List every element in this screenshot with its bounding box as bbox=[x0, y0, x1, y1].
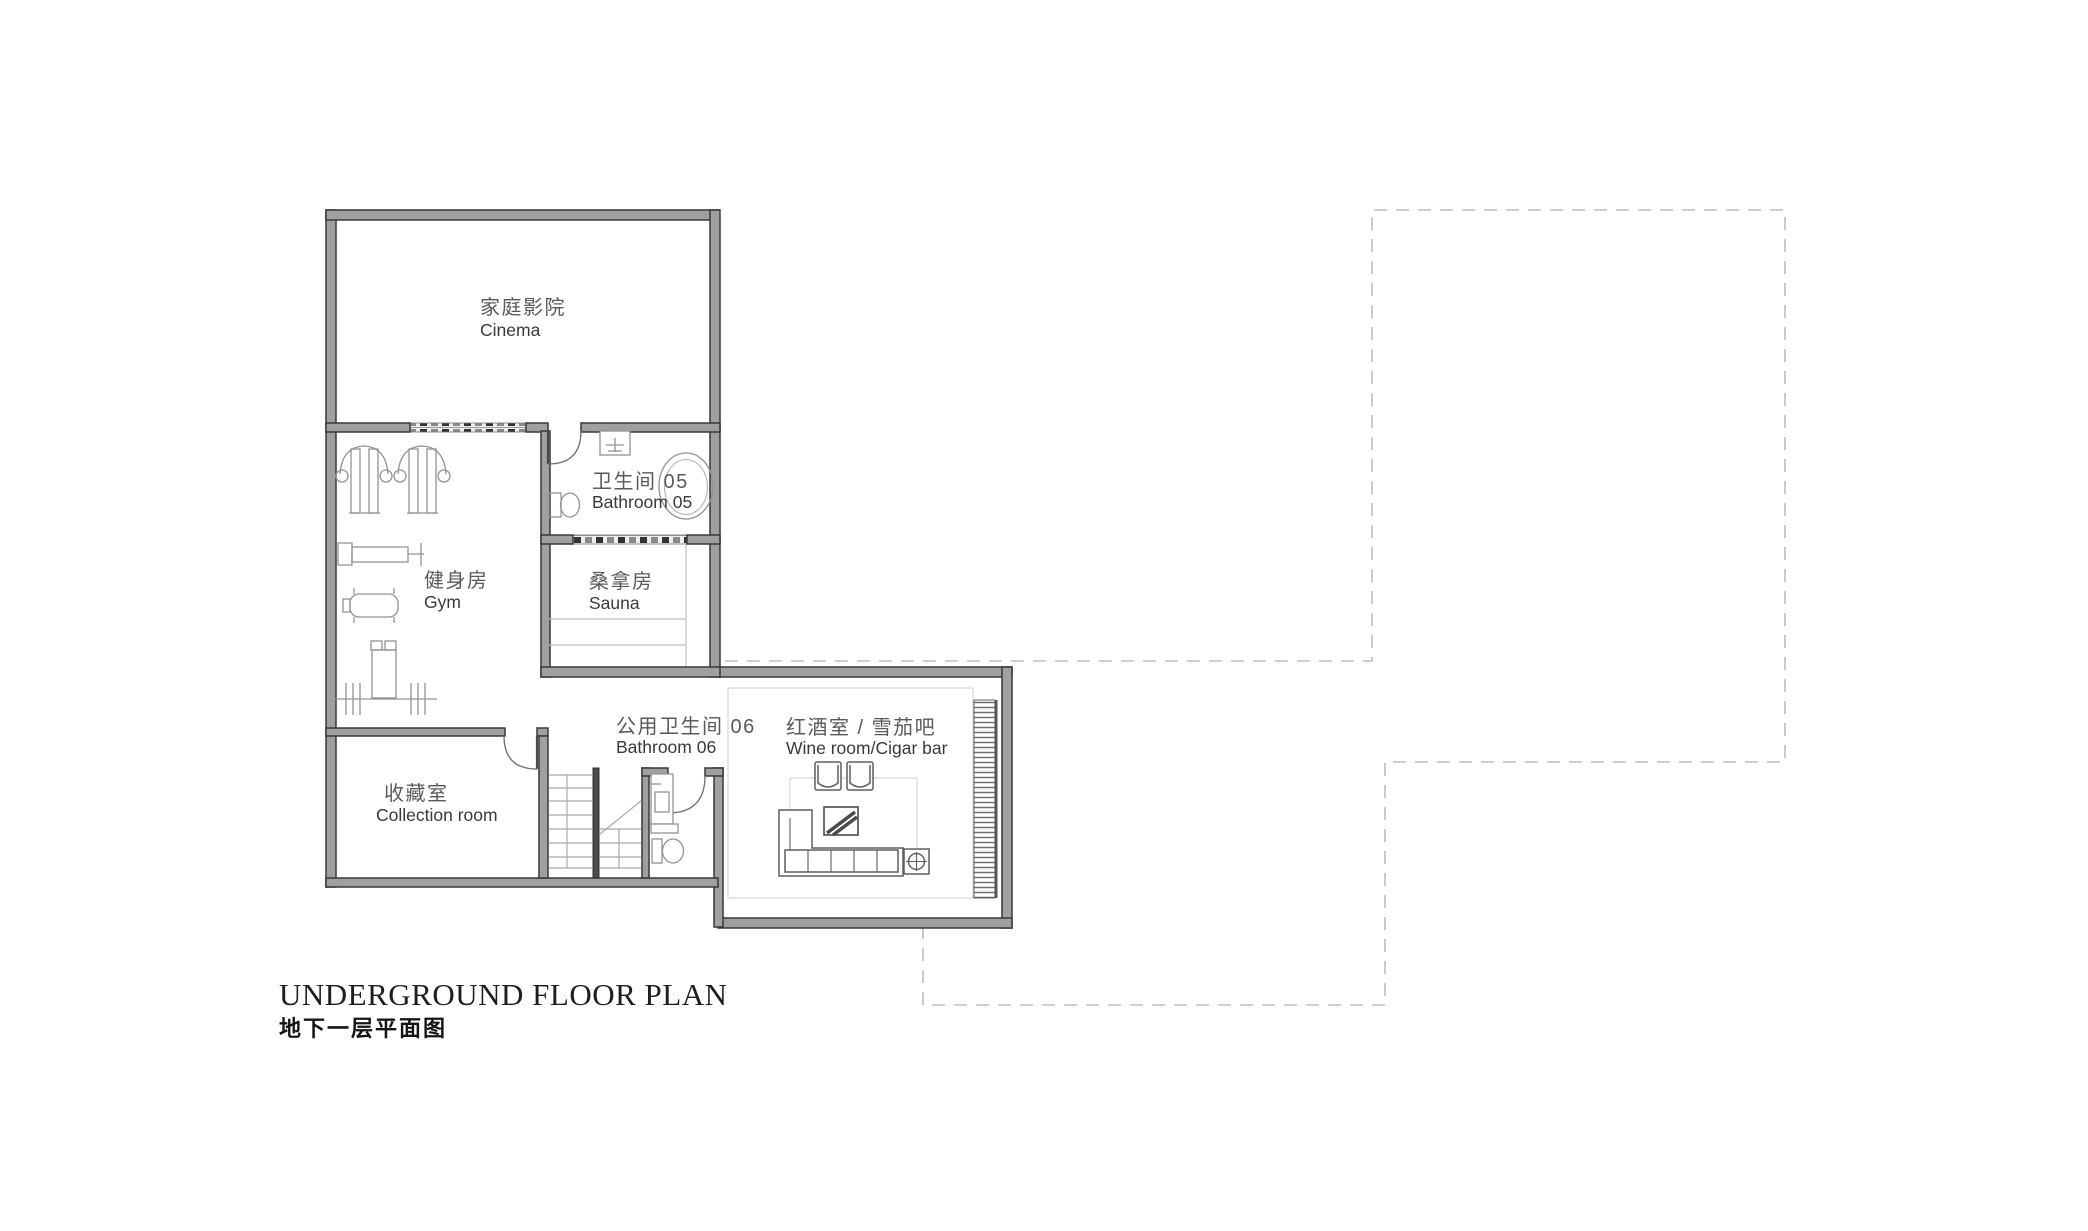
bathroom05-label-en: Bathroom 05 bbox=[592, 492, 692, 512]
wall-bath05-sauna-a bbox=[541, 535, 573, 544]
collection-label-cjk: 收藏室 bbox=[384, 782, 449, 805]
gym-label-cjk: 健身房 bbox=[424, 569, 489, 592]
wall-wine-bottom bbox=[718, 918, 1012, 928]
plan-title-chinese: 地下一层平面图 bbox=[279, 1016, 447, 1041]
sauna-label-en: Sauna bbox=[589, 593, 640, 613]
glazing-sauna-wall bbox=[573, 535, 687, 544]
wine-room-label-cjk: 红酒室 / 雪茄吧 bbox=[786, 716, 936, 739]
cable-machine-icon bbox=[336, 446, 392, 513]
room-labels: 家庭影院 Cinema 卫生间 05 Bathroom 05 健身房 Gym 桑… bbox=[376, 296, 948, 825]
wine-room-label-en: Wine room/Cigar bar bbox=[786, 738, 948, 758]
label-bathroom06: 公用卫生间 06 Bathroom 06 bbox=[616, 715, 756, 757]
wall-wine-top bbox=[718, 667, 1012, 677]
wall-outer-left bbox=[326, 210, 336, 887]
cable-machine-icon bbox=[394, 446, 450, 513]
bench-press-icon bbox=[338, 543, 424, 566]
wall-outer-right-upper bbox=[710, 210, 720, 677]
wall-wine-right bbox=[1002, 667, 1012, 928]
floor-plan-drawing: 家庭影院 Cinema 卫生间 05 Bathroom 05 健身房 Gym 桑… bbox=[0, 0, 2088, 1231]
label-wine-room: 红酒室 / 雪茄吧 Wine room/Cigar bar bbox=[786, 716, 948, 758]
sauna-label-cjk: 桑拿房 bbox=[589, 569, 654, 593]
label-sauna: 桑拿房 Sauna bbox=[589, 569, 654, 613]
door-bathroom05 bbox=[548, 431, 581, 464]
wall-gym-right bbox=[541, 431, 550, 677]
label-bathroom05: 卫生间 05 Bathroom 05 bbox=[592, 470, 692, 512]
vanity-icon bbox=[651, 774, 678, 833]
door-collection-room bbox=[504, 736, 537, 769]
bathroom06-label-en: Bathroom 06 bbox=[616, 737, 716, 757]
wall-bath05-sauna-b bbox=[687, 535, 720, 544]
glazing-cinema-wall bbox=[410, 423, 526, 432]
squat-rack-icon bbox=[334, 641, 437, 715]
wall-bathroom06-right bbox=[714, 768, 723, 927]
dashed-footprint-outline bbox=[725, 210, 1785, 1005]
armchair-icon bbox=[815, 762, 841, 790]
bathroom06-fixtures bbox=[651, 774, 684, 863]
wall-bathroom06-top-b bbox=[705, 768, 723, 776]
cinema-label-en: Cinema bbox=[480, 320, 541, 340]
wall-outer-top bbox=[326, 210, 719, 220]
cinema-label-cjk: 家庭影院 bbox=[480, 296, 566, 319]
side-table-lamp-icon bbox=[904, 849, 929, 874]
bathroom06-label-cjk: 公用卫生间 06 bbox=[616, 715, 756, 738]
wall-stair-divider bbox=[593, 768, 599, 878]
collection-label-en: Collection room bbox=[376, 805, 498, 825]
wall-bathroom06-left bbox=[642, 768, 649, 878]
toilet-icon bbox=[652, 839, 684, 863]
wine-rack-icon bbox=[974, 700, 996, 898]
label-collection-room: 收藏室 Collection room bbox=[376, 782, 498, 825]
title-block: UNDERGROUND FLOOR PLAN 地下一层平面图 bbox=[279, 977, 727, 1041]
bathroom05-label-cjk: 卫生间 05 bbox=[592, 470, 689, 493]
sink-icon bbox=[600, 431, 630, 455]
floor-plan-page: 家庭影院 Cinema 卫生间 05 Bathroom 05 健身房 Gym 桑… bbox=[0, 0, 2088, 1231]
label-cinema: 家庭影院 Cinema bbox=[480, 296, 566, 340]
weight-bench-icon bbox=[343, 588, 398, 623]
wall-outer-bottom-left-block bbox=[326, 878, 718, 887]
label-gym: 健身房 Gym bbox=[424, 569, 489, 612]
wall-collection-right bbox=[539, 736, 548, 878]
wall-sauna-bottom bbox=[541, 667, 720, 677]
armchair-icon bbox=[847, 762, 873, 790]
plan-title-english: UNDERGROUND FLOOR PLAN bbox=[279, 977, 727, 1012]
wall-cinema-bottom-a bbox=[326, 423, 410, 432]
wall-collection-top-a bbox=[326, 728, 505, 736]
wall-collection-top-b bbox=[537, 728, 548, 736]
gym-label-en: Gym bbox=[424, 592, 461, 612]
toilet-icon bbox=[549, 493, 580, 517]
coffee-table-icon bbox=[824, 807, 858, 835]
